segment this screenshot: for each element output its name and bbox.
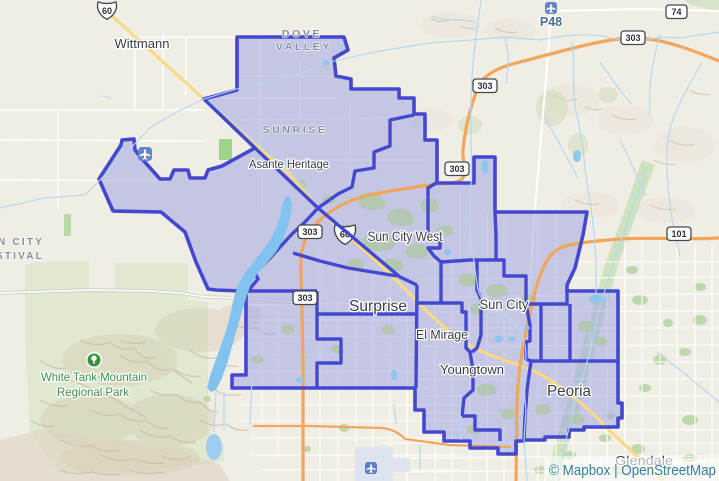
svg-text:Regional Park: Regional Park: [57, 385, 130, 399]
svg-text:74: 74: [671, 7, 681, 17]
svg-text:N CITY: N CITY: [0, 237, 44, 248]
svg-text:Youngtown: Youngtown: [440, 362, 504, 377]
svg-text:303: 303: [302, 227, 317, 237]
svg-text:El Mirage: El Mirage: [416, 327, 468, 342]
svg-text:Sun City: Sun City: [480, 297, 529, 312]
svg-text:© Mapbox | OpenStreetMap: © Mapbox | OpenStreetMap: [549, 462, 716, 479]
svg-text:DOVE: DOVE: [282, 28, 322, 40]
svg-text:303: 303: [297, 293, 312, 303]
svg-text:VALLEY: VALLEY: [276, 41, 332, 53]
svg-text:303: 303: [477, 81, 492, 91]
svg-text:STIVAL: STIVAL: [0, 251, 44, 262]
svg-text:Sun City West: Sun City West: [368, 228, 443, 244]
svg-text:303: 303: [449, 164, 464, 174]
svg-text:Surprise: Surprise: [349, 298, 407, 315]
svg-text:P48: P48: [540, 15, 562, 29]
svg-text:SUNRISE: SUNRISE: [263, 124, 328, 136]
svg-text:Wittmann: Wittmann: [115, 37, 170, 51]
svg-text:60: 60: [102, 6, 112, 16]
svg-text:White Tank Mountain: White Tank Mountain: [41, 370, 147, 384]
svg-text:Asante Heritage: Asante Heritage: [249, 157, 329, 171]
svg-text:101: 101: [671, 229, 686, 239]
svg-text:303: 303: [625, 33, 640, 43]
svg-text:Peoria: Peoria: [547, 383, 591, 400]
